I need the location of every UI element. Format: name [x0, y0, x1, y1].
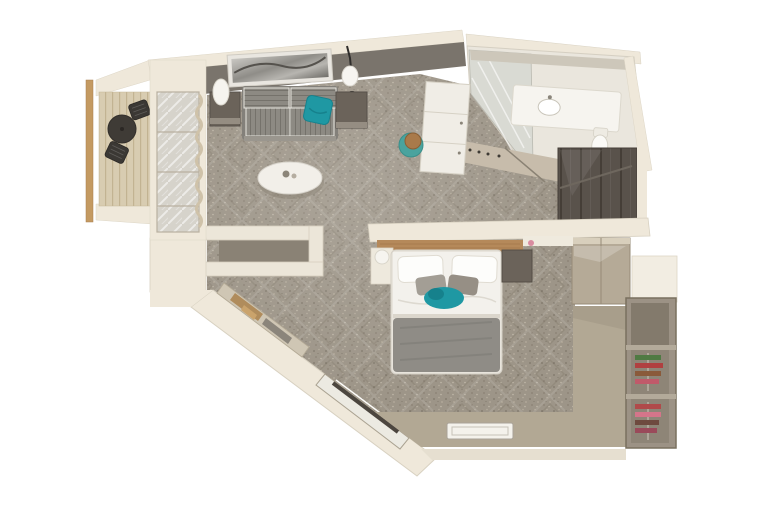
- nightstand: [502, 250, 532, 282]
- wall-hook-2: [478, 151, 481, 154]
- double-bed: [391, 250, 502, 374]
- outdoor-table-hub: [120, 127, 124, 131]
- shoe-maroon: [635, 428, 657, 433]
- foot-blanket: [393, 318, 500, 372]
- shoe-red: [635, 363, 663, 368]
- shoe-pink: [635, 412, 661, 417]
- stool-wood-top: [405, 133, 421, 149]
- shoe-green: [635, 355, 661, 360]
- closet-side-wall: [637, 146, 647, 230]
- shelf-cubby-top: [631, 303, 669, 345]
- teal-stool: [399, 133, 423, 157]
- side-table-right-drawer: [336, 122, 367, 128]
- shoe-dark-brown: [635, 420, 659, 425]
- coffee-table: [258, 162, 324, 199]
- outer-wall-corner-block: [632, 256, 677, 302]
- doormat: [447, 423, 513, 439]
- teal-throw-shadow: [428, 288, 444, 300]
- nook-interior: [219, 240, 309, 264]
- side-table-left-drawer: [210, 118, 240, 124]
- sofa: [242, 86, 338, 141]
- sliding-glass-door: [157, 92, 199, 232]
- shoe-rose: [635, 379, 659, 384]
- floorplan-canvas: [0, 0, 777, 518]
- shoe-brown: [635, 371, 661, 376]
- vanity: [511, 85, 622, 132]
- table-lamp: [213, 79, 229, 105]
- shoe-shelf-unit: [626, 298, 676, 448]
- sofa-back-cushion-left: [244, 88, 289, 108]
- table-decor-1: [283, 171, 290, 178]
- shelf-divider-2: [626, 394, 676, 399]
- flower-decor: [528, 240, 534, 246]
- sofa-seat-cushion-left: [246, 108, 290, 136]
- floor-lamp-shade: [342, 66, 358, 86]
- entry-bottom-wall: [421, 449, 626, 460]
- coffee-table-top: [258, 162, 322, 194]
- wall-art: [227, 49, 333, 87]
- bedside-lamp: [375, 250, 389, 264]
- wall-hook-3: [487, 153, 490, 156]
- sofa-teal-pillow: [303, 95, 334, 126]
- sofa-front-edge: [244, 136, 336, 141]
- duvet-edge-line: [393, 314, 500, 318]
- floorplan-render: [0, 0, 777, 518]
- shelf-divider-1: [626, 345, 676, 350]
- table-decor-2: [292, 174, 297, 179]
- left-wall-block: [150, 238, 206, 292]
- wall-hook-1: [469, 149, 472, 152]
- balcony-railing: [86, 80, 93, 222]
- nook-wall-bottom: [205, 262, 323, 276]
- minibar-cabinet: [420, 82, 470, 175]
- shoe-red-2: [635, 404, 661, 409]
- nook-wall-top: [205, 226, 323, 240]
- wall-hook-4: [498, 155, 501, 158]
